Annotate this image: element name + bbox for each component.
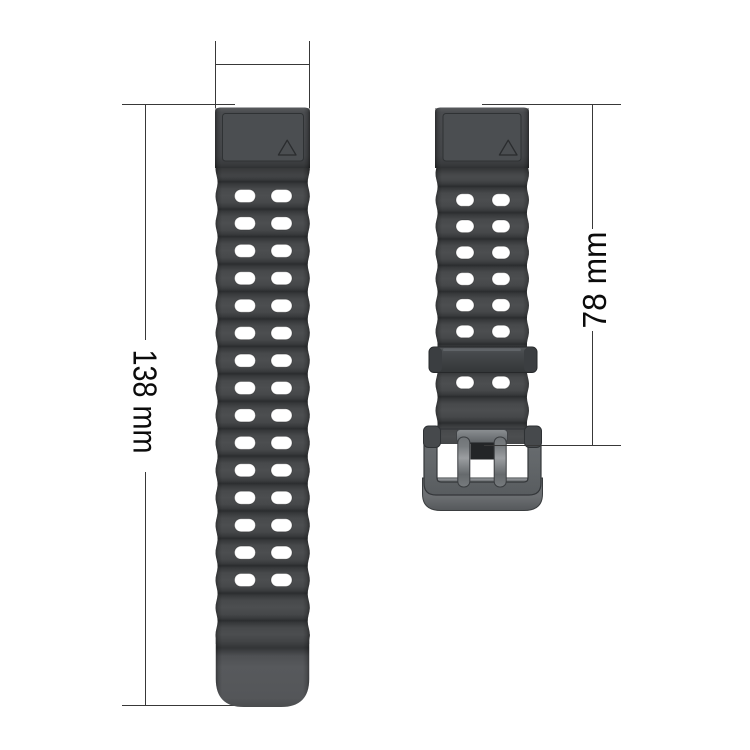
svg-text:138 mm: 138 mm — [127, 350, 164, 454]
svg-text:78 mm: 78 mm — [576, 232, 613, 329]
